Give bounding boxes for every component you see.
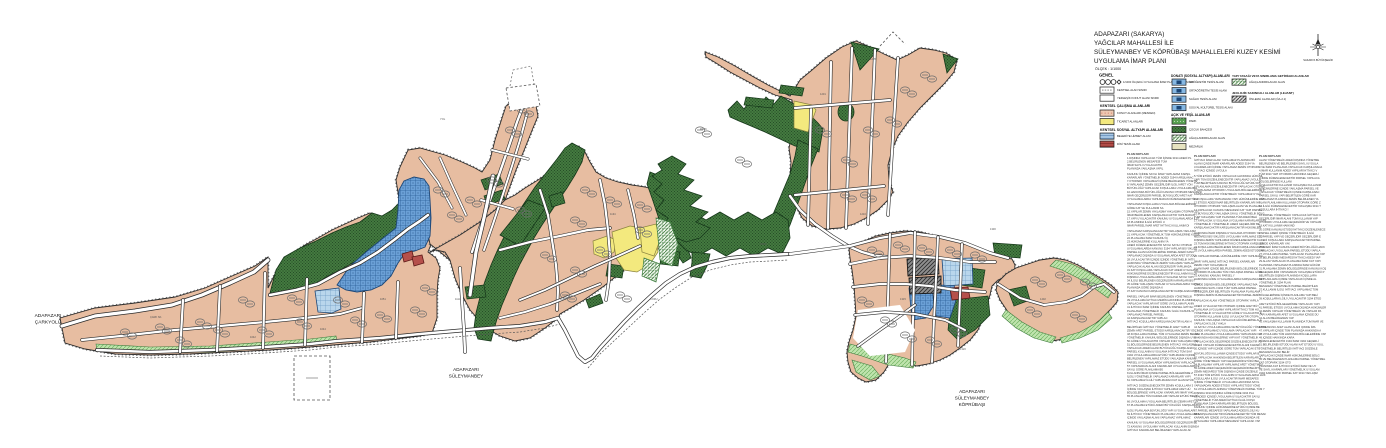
svg-text:72.KANUNU UYGULAMA YAPILACAK K: 72.KANUNU UYGULAMA YAPILACAK KULLANIM DI… bbox=[1127, 424, 1199, 428]
svg-text:ÇARK SK.: ÇARK SK. bbox=[150, 315, 162, 319]
svg-text:YAPILAMAZ DIŞINDA UYGULAMALARD: YAPILAMAZ DIŞINDA UYGULAMALARDA AFET ETÜ… bbox=[1127, 254, 1196, 258]
svg-text:ÖNLEMLİ ALANLAR (ÖA-2.1): ÖNLEMLİ ALANLAR (ÖA-2.1) bbox=[1249, 96, 1286, 101]
svg-text:ALANI PLANLAMA KULLANIM OTOPAR: ALANI PLANLAMA KULLANIM OTOPARK GÖRE Z bbox=[1259, 201, 1321, 205]
svg-text:KENTSEL SOSYAL ALTYAPI ALANLAR: KENTSEL SOSYAL ALTYAPI ALANLARI bbox=[1100, 128, 1163, 132]
svg-text:MEZARLIK: MEZARLIK bbox=[1189, 145, 1203, 149]
svg-text:PLAN NOTLARI: PLAN NOTLARI bbox=[1127, 152, 1149, 156]
svg-text:SÜLEYMANBEY: SÜLEYMANBEY bbox=[449, 373, 483, 379]
svg-text:1315: 1315 bbox=[900, 297, 906, 301]
svg-text:DIŞINDA 3194 DIŞINDA GÖRE IÇIN: DIŞINDA 3194 DIŞINDA GÖRE IÇINDE 3194 PL… bbox=[1194, 391, 1254, 395]
svg-text:31.KANUNU KANUNU PARSEL Y: 31.KANUNU KANUNU PARSEL Y bbox=[1194, 274, 1235, 278]
svg-text:YAPILACAK YAPILAR KAT GÖRE UYG: YAPILACAK YAPILAR KAT GÖRE UYGULAMA PLAN… bbox=[1127, 302, 1194, 306]
svg-text:PARK: PARK bbox=[760, 242, 767, 246]
svg-text:SOSYAL KÜLTÜREL TESİS ALANI: SOSYAL KÜLTÜREL TESİS ALANI bbox=[1189, 105, 1233, 110]
svg-text:1113: 1113 bbox=[455, 297, 461, 301]
svg-text:BELEDİYE HİZMET ALANI: BELEDİYE HİZMET ALANI bbox=[1117, 133, 1151, 138]
svg-text:44.KARŞILANACAKTIR YAPILAC: 44.KARŞILANACAKTIR YAPILAC bbox=[1127, 316, 1168, 320]
svg-text:ORTAÖĞRETİM TESİS ALANI: ORTAÖĞRETİM TESİS ALANI bbox=[1189, 88, 1227, 93]
svg-text:ÇOCUK BAHÇESİ: ÇOCUK BAHÇESİ bbox=[1189, 127, 1212, 132]
svg-text:PLAN NOTLARI: PLAN NOTLARI bbox=[1194, 154, 1216, 158]
svg-text:IÇINDE YAKLAŞMA ALANI YAPILAMA: IÇINDE YAKLAŞMA ALANI YAPILAMAZ YAPILAMA… bbox=[1127, 415, 1191, 419]
svg-text:SÜLEYMANBEY VE KÖPRÜBAŞI MAHAL: SÜLEYMANBEY VE KÖPRÜBAŞI MAHALLELERİ KUZ… bbox=[1094, 47, 1281, 56]
svg-text:ÇARKYOLU: ÇARKYOLU bbox=[35, 320, 62, 326]
svg-text:OTOPARK OTOPARK YAKLAŞMA ALANI: OTOPARK OTOPARK YAKLAŞMA ALANI VE PLANLA… bbox=[1194, 204, 1262, 208]
svg-text:3194 PLANLAMA UYGULAMALARDA YA: 3194 PLANLAMA UYGULAMALARDA YAPILMADAN U… bbox=[1194, 332, 1262, 336]
svg-text:HAKKINDA GÖRE UYGULAMALARDA KA: HAKKINDA GÖRE UYGULAMALARDA KARŞILANACAK… bbox=[1194, 277, 1264, 281]
svg-text:YAPILAMAZ PARSEL PARSEL: YAPILAMAZ PARSEL PARSEL bbox=[1127, 312, 1165, 316]
svg-text:1201: 1201 bbox=[820, 92, 826, 96]
svg-text:KÖPRÜBAŞI: KÖPRÜBAŞI bbox=[959, 401, 986, 407]
svg-text:PLAN NOTLARI: PLAN NOTLARI bbox=[1259, 154, 1281, 158]
svg-text:KAT OTOPARK 3194 OTO: KAT OTOPARK 3194 OTO bbox=[1259, 361, 1291, 365]
svg-text:ÖLÇEK : 1/1000: ÖLÇEK : 1/1000 bbox=[1095, 67, 1121, 71]
svg-text:1134: 1134 bbox=[610, 212, 616, 216]
svg-text:1402: 1402 bbox=[1040, 297, 1046, 301]
svg-text:PLANINDA GÖRE DIŞINDA K: PLANINDA GÖRE DIŞINDA K bbox=[1127, 286, 1163, 290]
svg-text:GENEL: GENEL bbox=[1099, 73, 1114, 78]
svg-text:PARK: PARK bbox=[700, 127, 707, 131]
svg-text:ADAPAZARI: ADAPAZARI bbox=[959, 389, 985, 394]
svg-text:AÇIK VE YEŞİL ALANLAR: AÇIK VE YEŞİL ALANLAR bbox=[1171, 113, 1211, 117]
svg-text:UYULACAKTIR KULLANIM YAKLAŞMA: UYULACAKTIR KULLANIM YAKLAŞMA KULLANIM bbox=[1259, 183, 1322, 187]
svg-text:YAPILAMAZ KARŞILANACAKTIR YAKL: YAPILAMAZ KARŞILANACAKTIR YAKLAŞMA YAKLA… bbox=[1127, 229, 1196, 233]
svg-text:49.IÇINDE HAKKINDA KARA: 49.IÇINDE HAKKINDA KARA bbox=[1259, 336, 1294, 340]
svg-text:SÜLEYMANBEY: SÜLEYMANBEY bbox=[955, 395, 989, 401]
svg-text:JEOLOJİK SAKINCALI ALANLAR (LE: JEOLOJİK SAKINCALI ALANLAR (LEJANT) bbox=[1232, 90, 1294, 95]
svg-text:PLANINDA YAKLAŞMA YAPIL: PLANINDA YAKLAŞMA YAPIL bbox=[1127, 167, 1164, 171]
svg-text:57.3194 TÜM ETÜDÜ KULLANIM UYG: 57.3194 TÜM ETÜDÜ KULLANIM UYGULAMALARDA… bbox=[1194, 373, 1266, 377]
svg-text:35.GÖRE YAKLAŞMA YAPILAR UYGUL: 35.GÖRE YAKLAŞMA YAPILAR UYGULAMALARDA Y… bbox=[1127, 282, 1200, 286]
svg-text:DIŞINDA UYGULAMALARDA UYGULAMA: DIŞINDA UYGULAMALARDA UYGULAMA SAYILI YA… bbox=[1127, 275, 1194, 279]
svg-text:1320: 1320 bbox=[960, 347, 966, 351]
svg-text:3194 UYGULAMALARDA ETÜDÜ YAPIL: 3194 UYGULAMALARDA ETÜDÜ YAPILMADAN IÇIN… bbox=[1127, 353, 1196, 357]
svg-text:KENTSEL ÇALIŞMA ALANLARI: KENTSEL ÇALIŞMA ALANLARI bbox=[1100, 104, 1150, 108]
svg-text:YERLEŞİK KONUT ALANI SINIRI: YERLEŞİK KONUT ALANI SINIRI bbox=[1117, 95, 1159, 100]
svg-text:1120: 1120 bbox=[520, 252, 526, 256]
svg-text:50.IÇINDE YAPI IÇINDE GÖRE TÜM: 50.IÇINDE YAPI IÇINDE GÖRE TÜM YAPILACAK… bbox=[1194, 346, 1260, 350]
svg-text:17.YAPILACAK UYGULAMA UYGULAMA: 17.YAPILACAK UYGULAMA UYGULAMA KARARLARI… bbox=[1194, 218, 1266, 222]
svg-text:DİNİ TESİS ALANI: DİNİ TESİS ALANI bbox=[1117, 141, 1140, 146]
svg-text:1330: 1330 bbox=[990, 227, 996, 231]
svg-text:SAĞLIK TESİS ALANI: SAĞLIK TESİS ALANI bbox=[1189, 96, 1217, 101]
svg-text:1205: 1205 bbox=[870, 57, 876, 61]
svg-text:KONUT ALANLARI (MESKEN): KONUT ALANLARI (MESKEN) bbox=[1117, 111, 1155, 115]
svg-text:50.GÖRE UYULACAKTIR YAPILAR 31: 50.GÖRE UYULACAKTIR YAPILAR 3194 YAKLAŞM… bbox=[1127, 339, 1198, 343]
svg-text:IÇINDE YAPILAMAZ UYGULAMA YAPI: IÇINDE YAPILAMAZ UYGULAMA YAPILACAK YAPI bbox=[1194, 329, 1257, 333]
svg-text:ADAPAZARI (SAKARYA): ADAPAZARI (SAKARYA) bbox=[1094, 31, 1164, 38]
svg-text:19.KAT KULLANIM HAKKIND: 19.KAT KULLANIM HAKKIND bbox=[1259, 224, 1295, 228]
svg-text:YAĞCILAR MAHALLESİ İLE: YAĞCILAR MAHALLESİ İLE bbox=[1094, 38, 1174, 47]
svg-text:PARK: PARK bbox=[1189, 119, 1197, 123]
svg-text:TİCARET ALANLARI: TİCARET ALANLARI bbox=[1117, 119, 1143, 124]
svg-text:KORU: KORU bbox=[650, 297, 658, 301]
svg-text:KENTSEL ALAN SINIRI: KENTSEL ALAN SINIRI bbox=[1117, 88, 1147, 92]
svg-text:PARSEL UYGULAMALARDA YAPILMADA: PARSEL UYGULAMALARDA YAPILMADAN YAPILACA… bbox=[1127, 360, 1195, 364]
svg-text:27.UYGULAMA PARSEL YAPILACAK P: 27.UYGULAMA PARSEL YAPILACAK PLANLAMA YA… bbox=[1259, 252, 1325, 256]
svg-text:1038: 1038 bbox=[290, 257, 296, 261]
svg-text:İLKÖĞRETİM TESİS ALANI: İLKÖĞRETİM TESİS ALANI bbox=[1189, 79, 1224, 84]
svg-text:1044: 1044 bbox=[320, 327, 326, 331]
svg-text:57.YAPILMADAN ALANI KARARLARI: 57.YAPILMADAN ALANI KARARLARI UYGULAMALA… bbox=[1127, 364, 1200, 368]
svg-text:HAKKINDA SAYILI 3194 TÜM YAPIL: HAKKINDA SAYILI 3194 TÜM YAPILAMAZ PARSE… bbox=[1194, 286, 1257, 290]
svg-text:ADAPAZARI: ADAPAZARI bbox=[453, 367, 479, 372]
svg-text:AĞAÇLANDIRILACAK ALAN: AĞAÇLANDIRILACAK ALAN bbox=[1189, 135, 1225, 140]
svg-text:3194 KARARLARI PARSEL KAT 3194: 3194 KARARLARI PARSEL KAT 3194 YAKLAŞM bbox=[1259, 371, 1318, 375]
svg-text:YOL: YOL bbox=[440, 117, 446, 121]
svg-text:SAYILI GÖRE PLANLAMA BÜ: SAYILI GÖRE PLANLAMA BÜ bbox=[1127, 367, 1163, 371]
svg-text:37.KAT KANUNU KARŞILANACAKTIR: 37.KAT KANUNU KARŞILANACAKTIR KARŞILANAC… bbox=[1127, 289, 1199, 293]
svg-text:YAPI YASAĞI VEYA SINIRLAMA GET: YAPI YASAĞI VEYA SINIRLAMA GETİRİLEN ALA… bbox=[1232, 73, 1310, 78]
svg-text:DONATI (SOSYAL ALTYAPI) ALANLA: DONATI (SOSYAL ALTYAPI) ALANLARI bbox=[1171, 74, 1230, 78]
svg-text:ADAPAZARI: ADAPAZARI bbox=[35, 313, 62, 319]
svg-text:UYGULAMA İMAR PLANI: UYGULAMA İMAR PLANI bbox=[1094, 56, 1167, 65]
svg-text:AĞAÇLANDIRILACAK ALAN: AĞAÇLANDIRILACAK ALAN bbox=[1249, 79, 1285, 84]
svg-text:41.PARSEL ETÜDÜ UYGULAMA DIŞIN: 41.PARSEL ETÜDÜ UYGULAMA DIŞINDA HÜKÜMLE… bbox=[1259, 305, 1326, 309]
svg-text:GÖRE KAT VE KULLANIM SA: GÖRE KAT VE KULLANIM SA bbox=[1127, 206, 1164, 210]
svg-text:47.YAPILAR IÇINDE TÜM PLANINDA: 47.YAPILAR IÇINDE TÜM PLANINDA HAKKINDA … bbox=[1259, 329, 1321, 333]
svg-text:1042: 1042 bbox=[250, 335, 256, 339]
svg-text:OTOPARK PLANLAMA TÜM YAKLAŞMA: OTOPARK PLANLAMA TÜM YAKLAŞMA PARSEL GÖR… bbox=[1194, 270, 1263, 274]
svg-text:YAPILACAK UYGULAMA PARSEL ETÜD: YAPILACAK UYGULAMA PARSEL ETÜDÜ YAPILA bbox=[1259, 249, 1321, 253]
svg-text:1051: 1051 bbox=[380, 297, 386, 301]
svg-text:1210: 1210 bbox=[860, 212, 866, 216]
svg-text:1127: 1127 bbox=[560, 297, 566, 301]
